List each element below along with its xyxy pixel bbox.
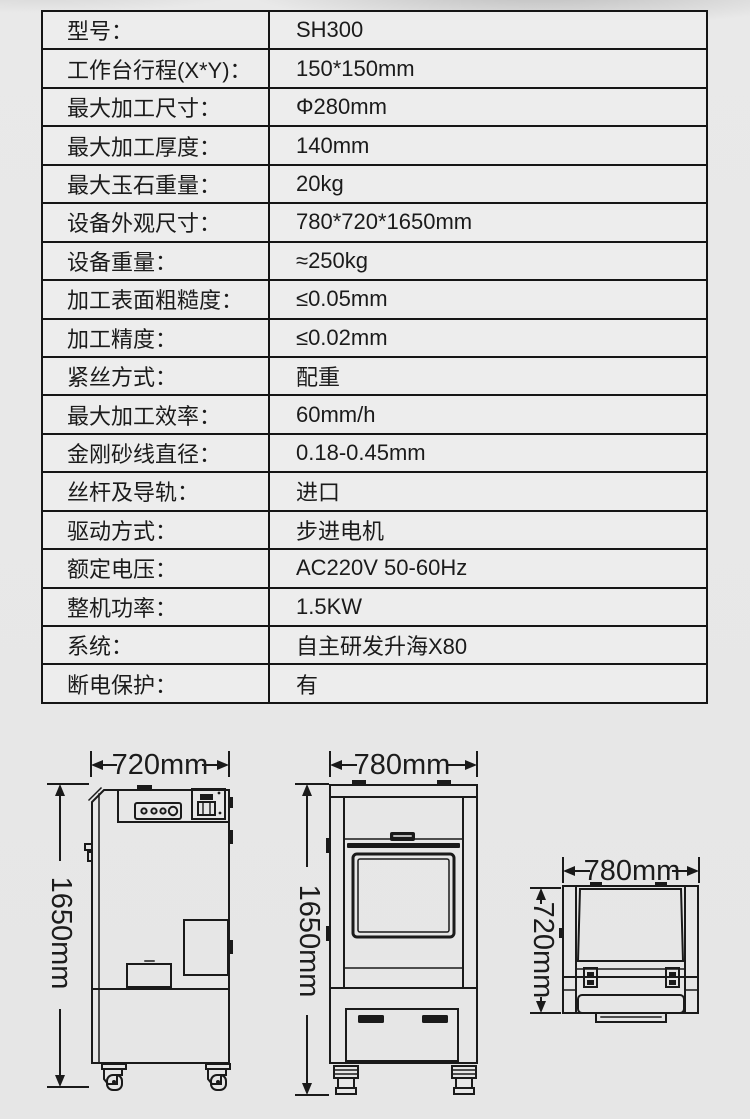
top-view-width-dimension: 780mm [563, 855, 699, 887]
table-row: 整机功率： 1.5KW [43, 589, 706, 627]
table-row: 最大玉石重量： 20kg [43, 166, 706, 204]
spec-label: 最大加工尺寸： [43, 89, 270, 125]
front-view-drawing: 780mm 1650mm [293, 748, 493, 1119]
spec-label: 最大加工厚度： [43, 127, 270, 163]
spec-value: 有 [270, 665, 706, 701]
spec-value: 780*720*1650mm [270, 204, 706, 240]
spec-label: 最大玉石重量： [43, 166, 270, 202]
spec-label: 加工表面粗糙度： [43, 281, 270, 317]
dimension-label: 1650mm [45, 877, 77, 990]
table-row: 加工精度： ≤0.02mm [43, 320, 706, 358]
table-row: 金刚砂线直径： 0.18-0.45mm [43, 435, 706, 473]
spec-label: 设备外观尺寸： [43, 204, 270, 240]
front-view-machine-outline [326, 780, 477, 1094]
side-view-height-dimension: 1650mm [45, 784, 88, 1087]
table-row: 最大加工效率： 60mm/h [43, 396, 706, 434]
spec-value: 150*150mm [270, 50, 706, 86]
table-row: 设备重量： ≈250kg [43, 243, 706, 281]
table-row: 额定电压： AC220V 50-60Hz [43, 550, 706, 588]
spec-label: 型号： [43, 12, 270, 48]
table-row: 最大加工尺寸： Φ280mm [43, 89, 706, 127]
table-row: 设备外观尺寸： 780*720*1650mm [43, 204, 706, 242]
spec-value: Φ280mm [270, 89, 706, 125]
spec-value: ≤0.05mm [270, 281, 706, 317]
spec-label: 工作台行程(X*Y)： [43, 50, 270, 86]
table-row: 断电保护： 有 [43, 665, 706, 701]
spec-label: 断电保护： [43, 665, 270, 701]
spec-label: 整机功率： [43, 589, 270, 625]
table-row: 加工表面粗糙度： ≤0.05mm [43, 281, 706, 319]
dimension-label: 1650mm [293, 885, 325, 998]
table-row: 紧丝方式： 配重 [43, 358, 706, 396]
front-view-height-dimension: 1650mm [293, 784, 328, 1095]
top-view-depth-dimension: 720mm [528, 888, 560, 1013]
spec-label: 金刚砂线直径： [43, 435, 270, 471]
table-row: 丝杆及导轨： 进口 [43, 473, 706, 511]
spec-label: 丝杆及导轨： [43, 473, 270, 509]
side-view-machine-outline [85, 785, 233, 1090]
spec-value: ≈250kg [270, 243, 706, 279]
top-view-machine-outline [559, 882, 698, 1022]
spec-value: SH300 [270, 12, 706, 48]
spec-value: 1.5KW [270, 589, 706, 625]
table-row: 系统： 自主研发升海X80 [43, 627, 706, 665]
spec-value: 配重 [270, 358, 706, 394]
dimension-label: 720mm [112, 749, 209, 781]
spec-label: 最大加工效率： [43, 396, 270, 432]
top-view-drawing: 780mm 720mm [528, 855, 750, 1035]
spec-value: 60mm/h [270, 396, 706, 432]
spec-value: 步进电机 [270, 512, 706, 548]
spec-label: 额定电压： [43, 550, 270, 586]
table-row: 工作台行程(X*Y)： 150*150mm [43, 50, 706, 88]
spec-value: 20kg [270, 166, 706, 202]
table-row: 最大加工厚度： 140mm [43, 127, 706, 165]
spec-value: 自主研发升海X80 [270, 627, 706, 663]
page-background: 型号： SH300 工作台行程(X*Y)： 150*150mm 最大加工尺寸： … [0, 0, 750, 1119]
spec-value: ≤0.02mm [270, 320, 706, 356]
spec-value: 0.18-0.45mm [270, 435, 706, 471]
dimension-label: 780mm [354, 749, 451, 781]
spec-label: 驱动方式： [43, 512, 270, 548]
side-view-width-dimension: 720mm [91, 749, 229, 781]
spec-table: 型号： SH300 工作台行程(X*Y)： 150*150mm 最大加工尺寸： … [41, 10, 708, 704]
dimension-label: 720mm [528, 902, 559, 999]
side-view-drawing: 720mm 1650mm [40, 748, 250, 1113]
spec-value: 140mm [270, 127, 706, 163]
spec-label: 加工精度： [43, 320, 270, 356]
front-view-width-dimension: 780mm [330, 749, 477, 781]
spec-value: AC220V 50-60Hz [270, 550, 706, 586]
table-row: 型号： SH300 [43, 12, 706, 50]
spec-label: 系统： [43, 627, 270, 663]
spec-label: 紧丝方式： [43, 358, 270, 394]
table-row: 驱动方式： 步进电机 [43, 512, 706, 550]
spec-value: 进口 [270, 473, 706, 509]
spec-label: 设备重量： [43, 243, 270, 279]
